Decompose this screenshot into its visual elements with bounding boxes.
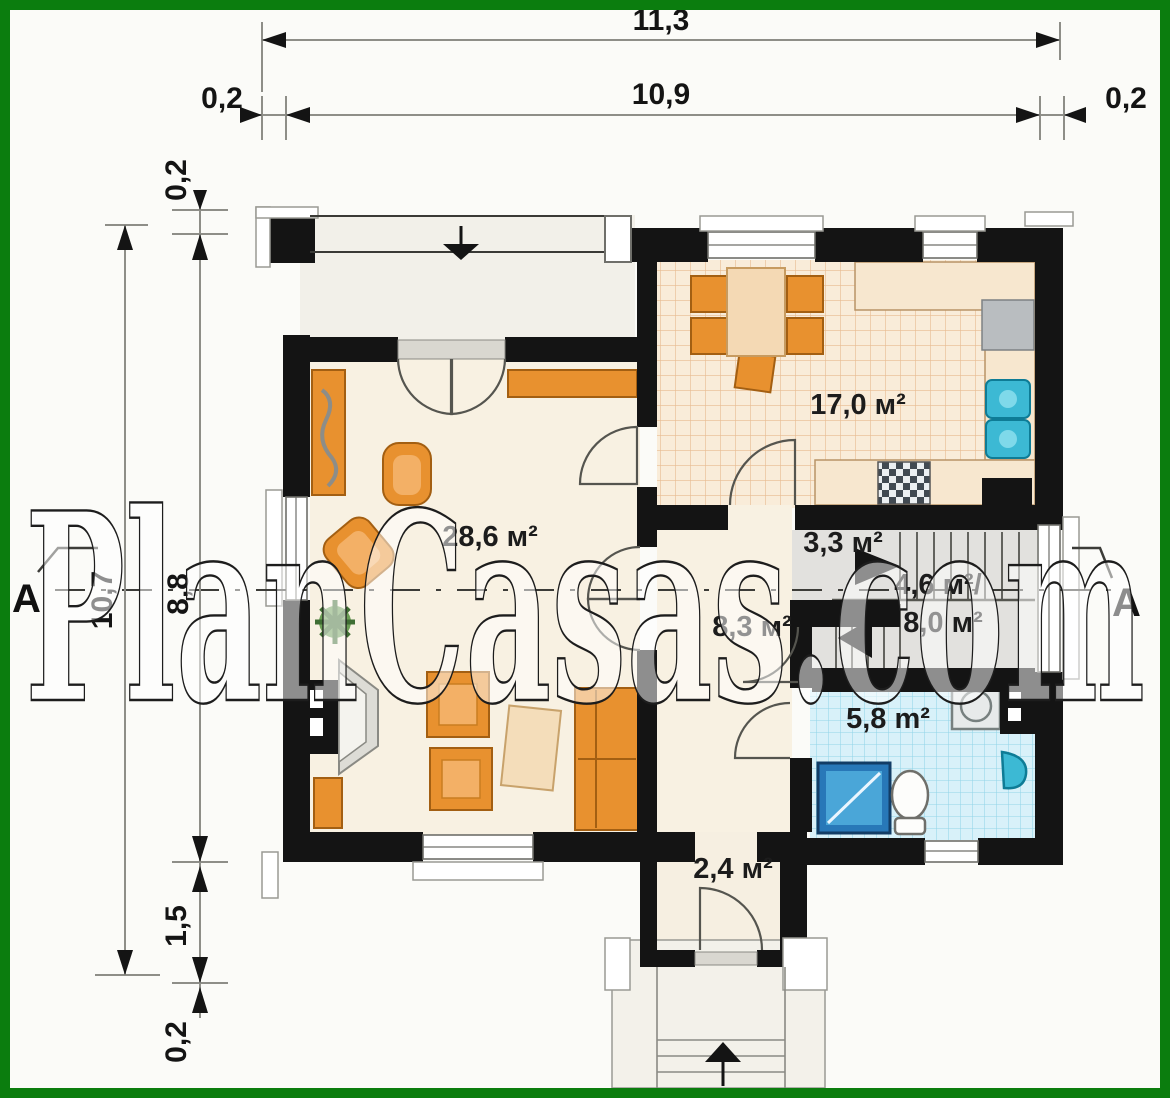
porch-pillar-base xyxy=(783,938,827,990)
wall xyxy=(807,838,925,865)
window-sill xyxy=(915,216,985,231)
wall xyxy=(815,228,923,262)
green-border-frame: A A 11,3 10,9 0,2 0,2 10,7 0,2 8,8 1,5 0… xyxy=(0,0,1170,1098)
wall xyxy=(283,832,423,862)
dim-left-lower: 1,5 xyxy=(160,905,193,947)
wall xyxy=(640,950,695,967)
wall xyxy=(657,832,695,862)
wall xyxy=(310,337,398,362)
kitchen-sink xyxy=(986,380,1030,458)
wall xyxy=(533,832,657,862)
dim-top-inner: 10,9 xyxy=(632,78,690,111)
log-box xyxy=(314,778,342,828)
dining-chair xyxy=(735,352,776,393)
dim-top-total: 11,3 xyxy=(633,10,690,37)
watermark-text: PlanCasas.com xyxy=(25,457,1145,762)
threshold xyxy=(398,340,505,359)
dim-top-right-offset: 0,2 xyxy=(1105,82,1147,115)
dim-top-left-offset: 0,2 xyxy=(201,82,243,115)
kitchen-area-label: 17,0 м² xyxy=(810,389,906,421)
wall xyxy=(265,215,315,263)
vestibule-area-label: 2,4 м² xyxy=(693,853,773,885)
corner-trim xyxy=(262,852,278,898)
fridge xyxy=(982,300,1034,350)
dining-chair xyxy=(691,318,727,354)
threshold xyxy=(695,952,757,965)
dining-chair xyxy=(691,276,727,312)
porch-pillar-base xyxy=(605,938,630,990)
wall xyxy=(505,337,640,362)
dining-chair xyxy=(787,276,823,312)
terrace-floor xyxy=(300,215,635,355)
dining-table xyxy=(727,268,785,356)
sideboard xyxy=(508,370,637,397)
shower xyxy=(818,763,890,833)
window-sill xyxy=(700,216,823,231)
corner-trim xyxy=(256,207,318,218)
wall xyxy=(790,758,812,832)
wall xyxy=(978,838,1063,865)
wall xyxy=(640,832,657,967)
floor-plan-drawing: A A 11,3 10,9 0,2 0,2 10,7 0,2 8,8 1,5 0… xyxy=(10,10,1160,1088)
wall xyxy=(637,250,657,427)
floor-plan-sheet: A A 11,3 10,9 0,2 0,2 10,7 0,2 8,8 1,5 0… xyxy=(10,10,1160,1088)
corner-trim xyxy=(1025,212,1073,226)
dim-left-bottom-offset: 0,2 xyxy=(160,1021,193,1063)
dining-chair xyxy=(787,318,823,354)
window-sill xyxy=(413,862,543,880)
toilet xyxy=(892,771,928,834)
dim-left-top-offset: 0,2 xyxy=(160,159,193,201)
